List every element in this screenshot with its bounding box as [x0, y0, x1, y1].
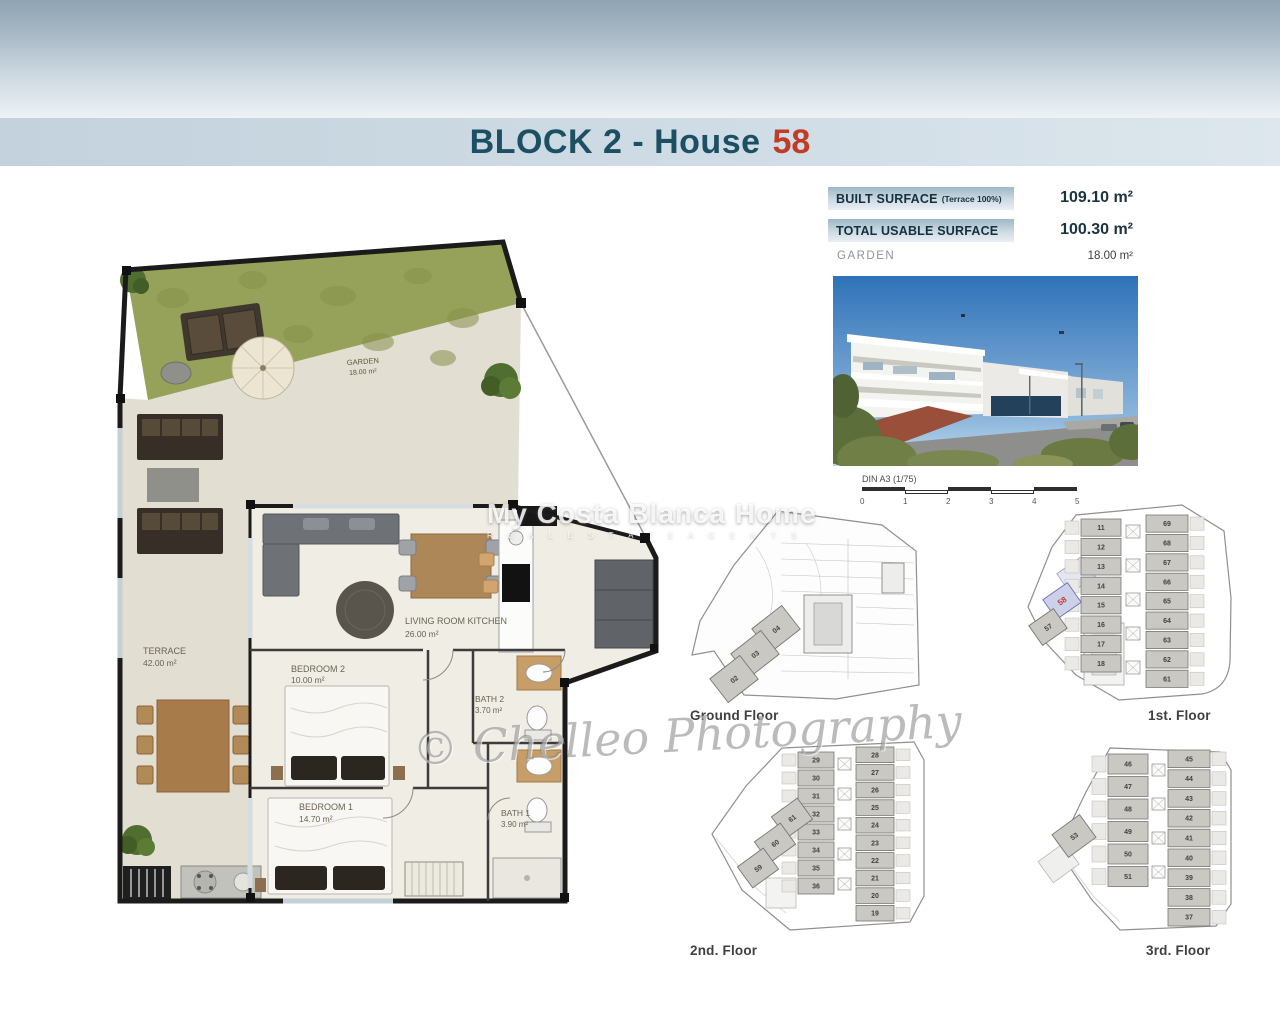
second-floor-label: 2nd. Floor: [690, 943, 757, 958]
brochure-page: BLOCK 2 - House 58 BUILT SURFACE (Terrac…: [0, 0, 1280, 1024]
living-area-label: 26.00 m²: [405, 629, 439, 639]
svg-text:26: 26: [871, 788, 879, 795]
title-bar: BLOCK 2 - House 58: [0, 118, 1280, 166]
svg-text:41: 41: [1185, 836, 1193, 843]
bedroom1-area-label: 14.70 m²: [299, 814, 333, 824]
bar-stool: [479, 553, 494, 566]
svg-text:34: 34: [812, 848, 820, 855]
building-photo: [833, 276, 1138, 466]
svg-text:20: 20: [871, 893, 879, 900]
bath1-label: BATH 1: [501, 808, 530, 818]
svg-text:18: 18: [1097, 661, 1105, 668]
svg-text:67: 67: [1163, 560, 1171, 567]
svg-text:51: 51: [1124, 874, 1132, 881]
first-floor-label: 1st. Floor: [1148, 708, 1211, 723]
terrace-sofa: [137, 414, 223, 460]
svg-text:31: 31: [812, 794, 820, 801]
miniplan-ground-floor: 040302: [686, 503, 926, 708]
svg-text:24: 24: [871, 823, 879, 830]
svg-text:15: 15: [1097, 603, 1105, 610]
usable-surface-value: 100.30 m²: [1018, 221, 1133, 239]
scale-segment: [862, 487, 905, 491]
svg-text:64: 64: [1163, 618, 1171, 625]
miniplan-first-floor: 11121314151617186968676665646362615857: [1024, 503, 1239, 708]
terrace-sofa: [137, 508, 223, 554]
house-number: 58: [773, 123, 811, 162]
svg-text:69: 69: [1163, 521, 1171, 528]
svg-text:33: 33: [812, 830, 820, 837]
bedroom2-label: BEDROOM 2: [291, 664, 345, 674]
terrace-area-label: 42.00 m²: [143, 658, 177, 668]
main-floorplan: GARDEN 18.00 m² TERRACE 42.00 m² LIVING …: [113, 238, 673, 916]
svg-text:37: 37: [1185, 915, 1193, 922]
kitchen-island: [499, 520, 533, 652]
svg-text:49: 49: [1124, 829, 1132, 836]
bath1-area-label: 3.90 m²: [501, 820, 528, 829]
scale-tick: 3: [989, 497, 993, 506]
bedroom2-area-label: 10.00 m²: [291, 675, 325, 685]
usable-surface-bar: TOTAL USABLE SURFACE: [828, 219, 1014, 242]
parasol: [232, 337, 294, 399]
bed-1: [255, 798, 392, 894]
bath2-area-label: 3.70 m²: [475, 706, 502, 715]
svg-text:28: 28: [871, 752, 879, 759]
svg-text:12: 12: [1097, 545, 1105, 552]
svg-text:62: 62: [1163, 657, 1171, 664]
page-title: BLOCK 2 - House: [470, 123, 761, 162]
svg-text:22: 22: [871, 858, 879, 865]
living-label: LIVING ROOM KITCHEN: [405, 616, 507, 626]
svg-text:45: 45: [1185, 756, 1193, 763]
svg-text:11: 11: [1097, 525, 1105, 532]
svg-text:19: 19: [871, 911, 879, 918]
svg-text:39: 39: [1185, 875, 1193, 882]
kitchen-counter: [595, 560, 653, 648]
svg-text:44: 44: [1185, 776, 1193, 783]
svg-text:38: 38: [1185, 895, 1193, 902]
svg-text:40: 40: [1185, 855, 1193, 862]
scale-tick: 2: [946, 497, 950, 506]
svg-text:21: 21: [871, 876, 879, 883]
bed-2: [271, 686, 405, 786]
stairs: [123, 866, 171, 900]
svg-text:36: 36: [812, 884, 820, 891]
svg-text:25: 25: [871, 805, 879, 812]
svg-text:35: 35: [812, 866, 820, 873]
svg-text:63: 63: [1163, 638, 1171, 645]
usable-surface-label: TOTAL USABLE SURFACE: [836, 224, 998, 238]
svg-text:50: 50: [1124, 852, 1132, 859]
miniplan-third-floor: 46474849505145444342414039383753: [1028, 742, 1238, 937]
scale-segment: [1034, 487, 1077, 491]
bath2-label: BATH 2: [475, 694, 504, 704]
bar-stool: [483, 580, 498, 593]
wardrobe: [405, 862, 463, 896]
svg-text:43: 43: [1185, 796, 1193, 803]
svg-text:30: 30: [812, 776, 820, 783]
svg-text:17: 17: [1097, 642, 1105, 649]
svg-text:42: 42: [1185, 816, 1193, 823]
svg-text:27: 27: [871, 770, 879, 777]
svg-text:23: 23: [871, 840, 879, 847]
svg-text:68: 68: [1163, 541, 1171, 548]
svg-text:14: 14: [1097, 583, 1105, 590]
scale-segment: [948, 487, 991, 491]
scale-bar: [862, 487, 1077, 494]
garden-surface-label: GARDEN: [837, 250, 895, 262]
svg-text:48: 48: [1124, 807, 1132, 814]
bedroom1-label: BEDROOM 1: [299, 802, 353, 812]
svg-text:65: 65: [1163, 599, 1171, 606]
built-surface-note: (Terrace 100%): [942, 194, 1002, 204]
built-surface-value: 109.10 m²: [1018, 189, 1133, 207]
terrace-mat: [147, 468, 199, 502]
garden-rock: [161, 362, 191, 384]
ground-floor-label: Ground Floor: [690, 708, 779, 723]
scale-segment: [991, 490, 1034, 494]
svg-text:61: 61: [1163, 676, 1171, 683]
garden-surface-value: 18.00 m²: [1018, 250, 1133, 262]
header-gradient-band: [0, 0, 1280, 118]
scale-label: DIN A3 (1/75): [862, 474, 917, 484]
svg-text:66: 66: [1163, 579, 1171, 586]
svg-text:47: 47: [1124, 784, 1132, 791]
built-surface-label: BUILT SURFACE: [836, 192, 938, 206]
svg-text:29: 29: [812, 758, 820, 765]
svg-text:32: 32: [812, 812, 820, 819]
svg-text:46: 46: [1124, 762, 1132, 769]
scale-segment: [905, 490, 948, 494]
built-surface-bar: BUILT SURFACE (Terrace 100%): [828, 187, 1014, 210]
svg-text:16: 16: [1097, 622, 1105, 629]
terrace-label: TERRACE: [143, 646, 186, 656]
third-floor-label: 3rd. Floor: [1146, 943, 1210, 958]
miniplan-second-floor: 2930313233343536282726252423222120196160…: [686, 738, 926, 938]
svg-text:13: 13: [1097, 564, 1105, 571]
